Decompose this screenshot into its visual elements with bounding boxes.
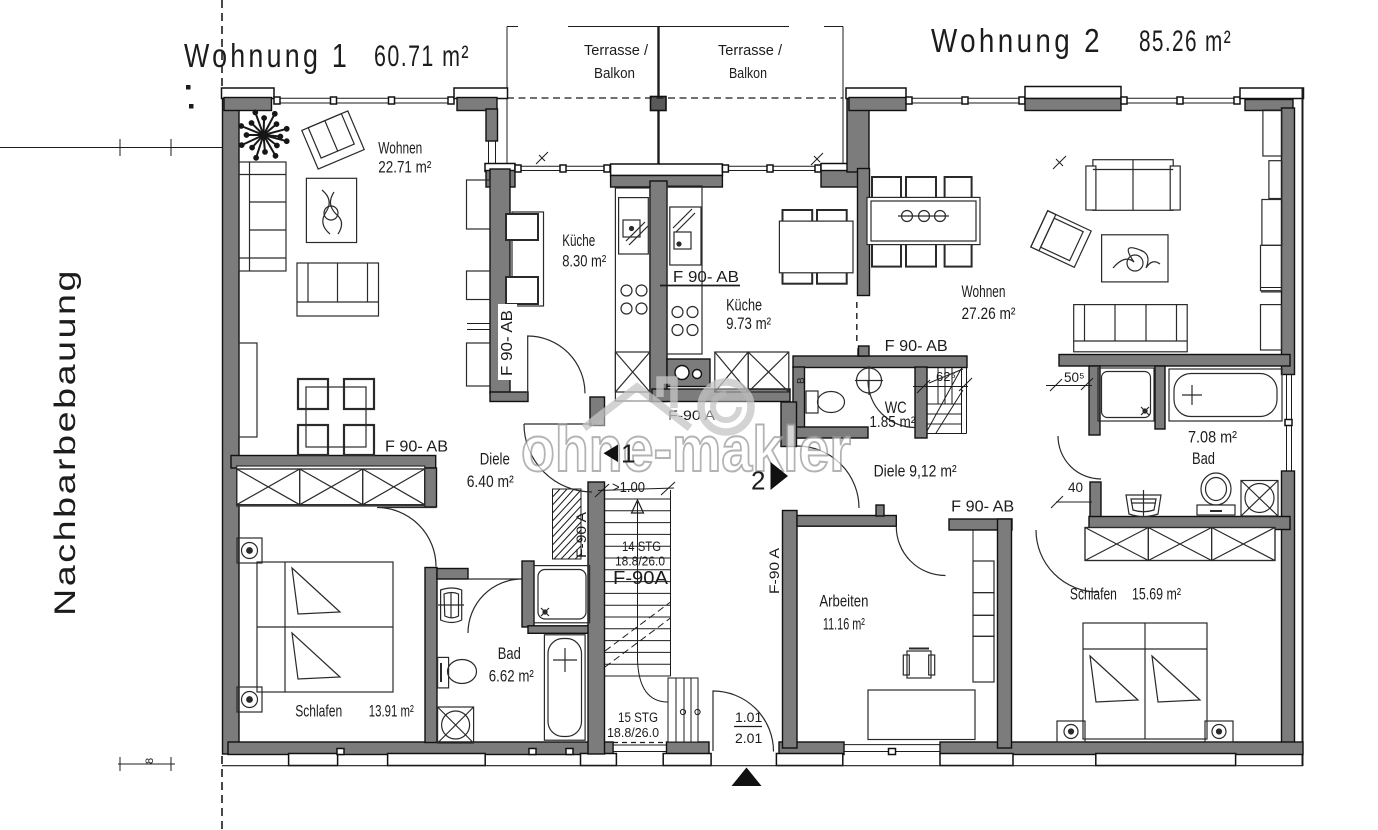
svg-text:8: 8 bbox=[144, 758, 156, 764]
svg-text:60.71 m²: 60.71 m² bbox=[374, 40, 470, 73]
svg-text:14 STG: 14 STG bbox=[622, 539, 661, 554]
svg-text:F 90- AB: F 90- AB bbox=[673, 269, 739, 286]
svg-text:Schlafen: Schlafen bbox=[295, 703, 342, 721]
svg-text:F 90- AB: F 90- AB bbox=[385, 439, 448, 456]
svg-text:Arbeiten: Arbeiten bbox=[819, 593, 868, 611]
svg-text:Wohnung 2: Wohnung 2 bbox=[931, 22, 1103, 59]
svg-text:85.26 m²: 85.26 m² bbox=[1139, 25, 1232, 58]
svg-text:15 STG: 15 STG bbox=[618, 710, 658, 725]
svg-text:50⁵: 50⁵ bbox=[1064, 370, 1085, 385]
svg-text:2: 2 bbox=[751, 466, 765, 496]
svg-text:F 90- AB: F 90- AB bbox=[951, 499, 1014, 516]
svg-text:F-90A: F-90A bbox=[613, 568, 668, 588]
svg-text:Küche: Küche bbox=[562, 232, 595, 250]
svg-text:40: 40 bbox=[1068, 480, 1083, 495]
svg-text:18.8/26.0: 18.8/26.0 bbox=[607, 725, 659, 740]
svg-text:27.26 m²: 27.26 m² bbox=[962, 305, 1016, 323]
svg-text:Bad: Bad bbox=[498, 645, 521, 663]
svg-text:8.30 m²: 8.30 m² bbox=[562, 253, 606, 271]
svg-text:Bad: Bad bbox=[1192, 450, 1215, 468]
svg-text:Terrasse /: Terrasse / bbox=[718, 42, 783, 59]
svg-text:F-90 A: F-90 A bbox=[766, 547, 782, 594]
svg-text:22.71 m²: 22.71 m² bbox=[378, 158, 431, 176]
svg-text:Schlafen: Schlafen bbox=[1070, 585, 1117, 603]
svg-text:F 90- AB: F 90- AB bbox=[499, 310, 516, 376]
svg-text:Diele: Diele bbox=[480, 451, 510, 469]
svg-text:6.40 m²: 6.40 m² bbox=[467, 473, 514, 491]
svg-text:Balkon: Balkon bbox=[729, 65, 767, 82]
svg-text:Nachbarbebauung: Nachbarbebauung bbox=[49, 268, 82, 616]
svg-text:9.73 m²: 9.73 m² bbox=[726, 315, 771, 333]
svg-text:1: 1 bbox=[621, 439, 635, 469]
svg-text:15.69 m²: 15.69 m² bbox=[1132, 585, 1181, 603]
svg-text:Balkon: Balkon bbox=[594, 65, 635, 82]
svg-text:Küche: Küche bbox=[726, 296, 762, 314]
svg-text:1.01: 1.01 bbox=[735, 709, 762, 725]
svg-text:Wohnen: Wohnen bbox=[962, 283, 1006, 301]
svg-text:18.8/26.0: 18.8/26.0 bbox=[615, 554, 665, 569]
svg-text:Wohnung 1: Wohnung 1 bbox=[184, 37, 350, 74]
svg-text:2.01: 2.01 bbox=[735, 730, 762, 746]
svg-text:Wohnen: Wohnen bbox=[378, 140, 422, 158]
svg-text:13.91 m²: 13.91 m² bbox=[369, 703, 414, 721]
svg-text:F 90- AB: F 90- AB bbox=[885, 338, 948, 355]
svg-text:1.85 m²: 1.85 m² bbox=[869, 414, 915, 431]
svg-text:7.08 m²: 7.08 m² bbox=[1188, 429, 1237, 447]
svg-text:ohne-makler: ohne-makler bbox=[521, 413, 851, 485]
svg-text:B: B bbox=[796, 377, 807, 384]
svg-text:Terrasse /: Terrasse / bbox=[584, 42, 649, 59]
svg-text:Diele 9,12 m²: Diele 9,12 m² bbox=[874, 463, 957, 481]
svg-text:F-90 A: F-90 A bbox=[574, 512, 589, 558]
svg-text:6.62 m²: 6.62 m² bbox=[489, 668, 534, 686]
svg-text:11.16 m²: 11.16 m² bbox=[823, 615, 865, 633]
